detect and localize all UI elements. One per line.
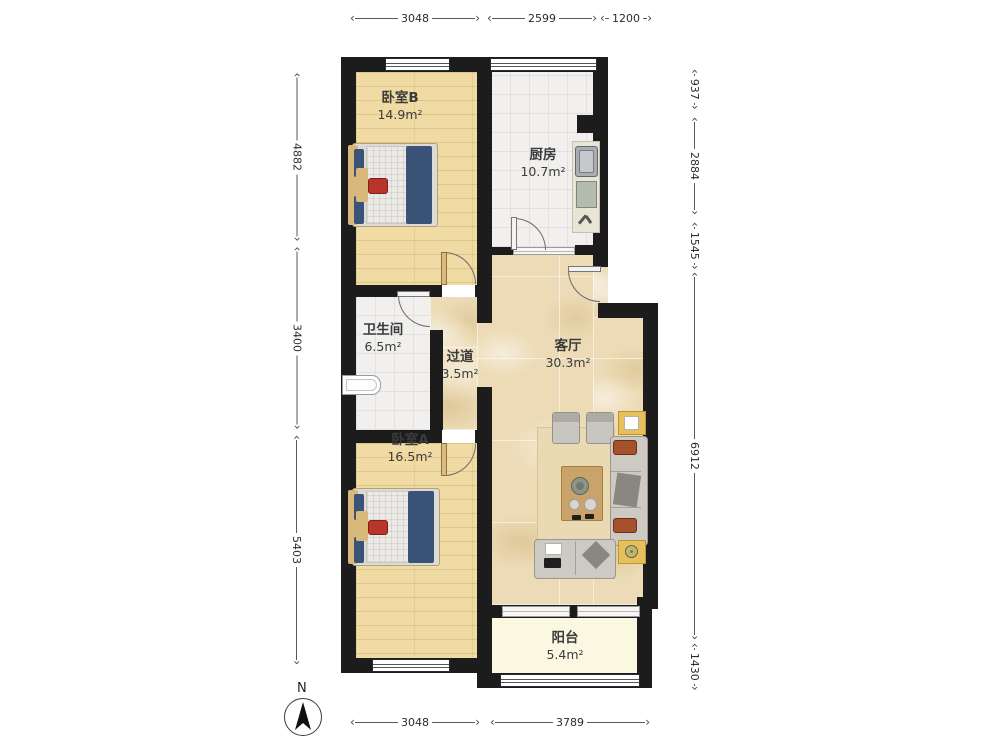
compass-north-label: N (297, 681, 307, 696)
arrowhead-right: › (291, 237, 305, 242)
wall-mid-vertical-upper (477, 57, 492, 323)
dimension-right-2: ‹ 2884 › (688, 117, 702, 215)
floor-plan: 卧室B 14.9m² 厨房 10.7m² 卫生间 6.5m² 过道 3.5m² … (0, 0, 1000, 750)
sofa-right-seat-line-1 (611, 471, 641, 472)
window-bedroom-b-top (385, 58, 450, 71)
dimension-right-3: ‹ 1545 › (688, 222, 702, 268)
arrowhead-right: › (475, 715, 480, 729)
bedroom-a-red-cushion (368, 520, 388, 535)
dimension-value: 2884 (689, 149, 702, 183)
sofa-bottom-tray (545, 543, 562, 555)
dimension-left-3: ‹ 5403 › (290, 435, 304, 665)
sofa-right-pillow-bottom (613, 518, 637, 533)
arrowhead-right: › (645, 715, 650, 729)
compass-icon (284, 698, 322, 736)
dimension-right-4: ‹ 6912 › (688, 272, 702, 640)
dimension-value: 6912 (689, 439, 702, 473)
wall-kitchen-stub (577, 115, 593, 133)
dimension-bottom-1: ‹ 3048 › (350, 715, 480, 729)
arrowhead-right: › (688, 105, 702, 110)
dimension-value: 1545 (689, 229, 702, 263)
hallway-area: 3.5m² (405, 366, 515, 382)
kitchen-name: 厨房 (488, 147, 598, 164)
bedroom-b-pillow-mid (356, 168, 368, 202)
window-balcony-bottom (500, 674, 640, 687)
living-room-name: 客厅 (513, 338, 623, 355)
arrowhead-right: › (688, 210, 702, 215)
kitchen-label: 厨房 10.7m² (488, 147, 598, 180)
balcony-label: 阳台 5.4m² (510, 630, 620, 663)
balcony-opening-sill-right (577, 606, 640, 617)
side-table-bottom-plate (625, 545, 638, 558)
dimension-top-2: ‹ 2599 › (487, 11, 597, 25)
dimension-top-3: ‹ 1200 › (600, 11, 652, 25)
armchair-left (552, 412, 580, 444)
compass-needle-icon (285, 699, 321, 735)
dimension-right-1: ‹ 937 › (688, 69, 702, 109)
dimension-top-1: ‹ 3048 › (350, 11, 480, 25)
arrowhead-right: › (688, 635, 702, 640)
living-room-area: 30.3m² (513, 355, 623, 371)
dimension-value: 3048 (398, 12, 432, 25)
window-kitchen-top (490, 58, 597, 71)
bedroom-a-name: 卧室A (355, 432, 465, 449)
bedroom-a-blanket (408, 491, 434, 563)
bedroom-a-pillow-mid (356, 511, 368, 541)
arrowhead-right: › (290, 660, 304, 665)
sofa-right-pillow-top (613, 440, 637, 455)
bathroom-door-leaf (397, 291, 430, 297)
dimension-value: 2599 (525, 12, 559, 25)
arrowhead-right: › (647, 11, 652, 25)
bathroom-basin (342, 375, 381, 395)
coffee-table-remote-2 (585, 514, 594, 519)
living-room-label: 客厅 30.3m² (513, 338, 623, 371)
wall-kitchen-bottom-west (477, 247, 513, 255)
balcony-name: 阳台 (510, 630, 620, 647)
bedroom-a-label: 卧室A 16.5m² (355, 432, 465, 465)
bedroom-b-label: 卧室B 14.9m² (345, 90, 455, 123)
arrowhead-right: › (688, 686, 702, 691)
sofa-bottom-black-item (544, 558, 561, 568)
dimension-value: 1200 (609, 12, 643, 25)
sofa-right-throw-blanket (613, 472, 641, 507)
dimension-bottom-2: ‹ 3789 › (490, 715, 650, 729)
bedroom-b-area: 14.9m² (345, 107, 455, 123)
bedroom-b-red-cushion (368, 178, 388, 194)
bedroom-a-area: 16.5m² (355, 449, 465, 465)
balcony-area: 5.4m² (510, 647, 620, 663)
bedroom-b-door-leaf (441, 252, 447, 285)
arrowhead-right: › (592, 11, 597, 25)
dimension-right-5: ‹ 1430 › (688, 643, 702, 689)
bathroom-name: 卫生间 (328, 322, 438, 339)
coffee-table-bowl-2 (584, 498, 597, 511)
hallway-name: 过道 (405, 349, 515, 366)
dimension-value: 937 (689, 76, 702, 103)
arrowhead-right: › (475, 11, 480, 25)
kitchen-door-leaf (511, 217, 517, 250)
wall-bathroom-bottom-right (475, 430, 492, 443)
bedroom-b-name: 卧室B (345, 90, 455, 107)
arrowhead-right: › (688, 265, 702, 270)
coffee-table-plant (571, 477, 589, 495)
balcony-opening-sill-left (502, 606, 570, 617)
dimension-left-2: ‹ 3400 › (291, 247, 305, 430)
window-bedroom-a-bottom (372, 659, 450, 672)
dimension-value: 4882 (291, 140, 304, 174)
dimension-value: 1430 (689, 650, 702, 684)
arrowhead-right: › (291, 425, 305, 430)
dimension-left-1: ‹ 4882 › (291, 73, 305, 242)
coffee-table-remote-1 (572, 515, 581, 520)
dimension-value: 3048 (398, 716, 432, 729)
coffee-table-bowl-1 (569, 499, 580, 510)
dimension-value: 5403 (291, 533, 304, 567)
sofa-bottom-cushion-line (575, 541, 576, 575)
wall-bedroomb-bottom-right (475, 285, 492, 297)
kitchen-area: 10.7m² (488, 164, 598, 180)
bedroom-b-blanket (406, 146, 432, 224)
dimension-value: 3400 (291, 321, 304, 355)
dimension-value: 3789 (553, 716, 587, 729)
kitchen-stove (576, 181, 597, 208)
hallway-label: 过道 3.5m² (405, 349, 515, 382)
side-table-top-paper (624, 416, 639, 430)
entry-door-leaf (568, 266, 601, 272)
